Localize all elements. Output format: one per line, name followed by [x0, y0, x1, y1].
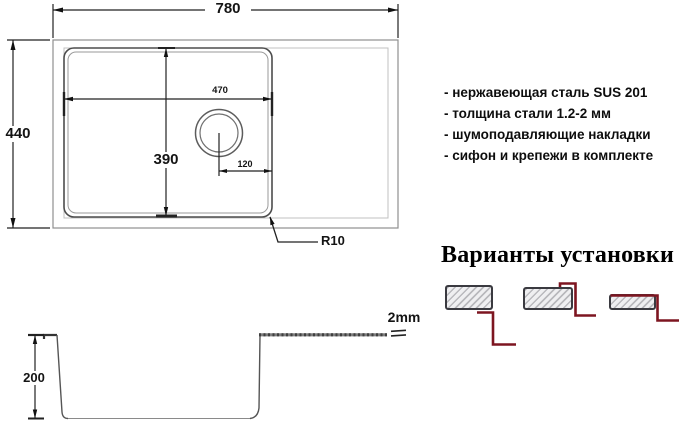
dim-label-overall-width: 780 — [205, 1, 251, 17]
sink-spec-sheet: 780 440 470 390 120 R10 200 2mm - нержав… — [0, 0, 683, 426]
feature-item-steel: - нержавеющая сталь SUS 201 — [444, 82, 680, 103]
r10-leader-line — [270, 217, 318, 242]
dim-label-bowl-width: 470 — [203, 86, 237, 96]
sink-profile-undermount-icon — [445, 283, 520, 349]
dim-line-470 — [64, 92, 272, 116]
install-option-flushmount — [523, 279, 599, 321]
technical-drawing — [0, 0, 683, 426]
dim-label-section-depth: 200 — [18, 371, 50, 385]
dim-label-drain-offset: 120 — [231, 160, 259, 169]
dim-label-steel-thickness: 2mm — [384, 310, 424, 325]
sink-profile-topmount-icon — [609, 292, 683, 325]
feature-item-noise-pads: - шумоподавляющие накладки — [444, 124, 680, 145]
bowl-outer-rim — [64, 48, 272, 217]
install-option-topmount — [609, 292, 683, 325]
section-left-lip — [44, 335, 57, 339]
thickness-symbol — [391, 330, 406, 336]
dim-label-bowl-depth: 390 — [147, 152, 185, 168]
feature-item-thickness: - толщина стали 1.2-2 мм — [444, 103, 680, 124]
section-left-wall — [57, 335, 68, 419]
dim-label-overall-depth: 440 — [1, 126, 35, 142]
section-right-wall — [250, 336, 260, 419]
section-view — [28, 330, 406, 418]
dim-label-corner-radius: R10 — [321, 234, 345, 248]
feature-list: - нержавеющая сталь SUS 201 - толщина ст… — [444, 82, 680, 166]
sink-outer-outline — [53, 40, 398, 228]
top-view — [7, 4, 398, 242]
feature-item-siphon: - сифон и крепежи в комплекте — [444, 145, 680, 166]
dim-line-390 — [156, 48, 177, 216]
install-option-undermount — [445, 283, 520, 349]
sink-inner-surface — [64, 48, 388, 218]
sink-profile-flushmount-icon — [523, 279, 599, 321]
installation-options-title: Варианты установки — [441, 242, 681, 269]
